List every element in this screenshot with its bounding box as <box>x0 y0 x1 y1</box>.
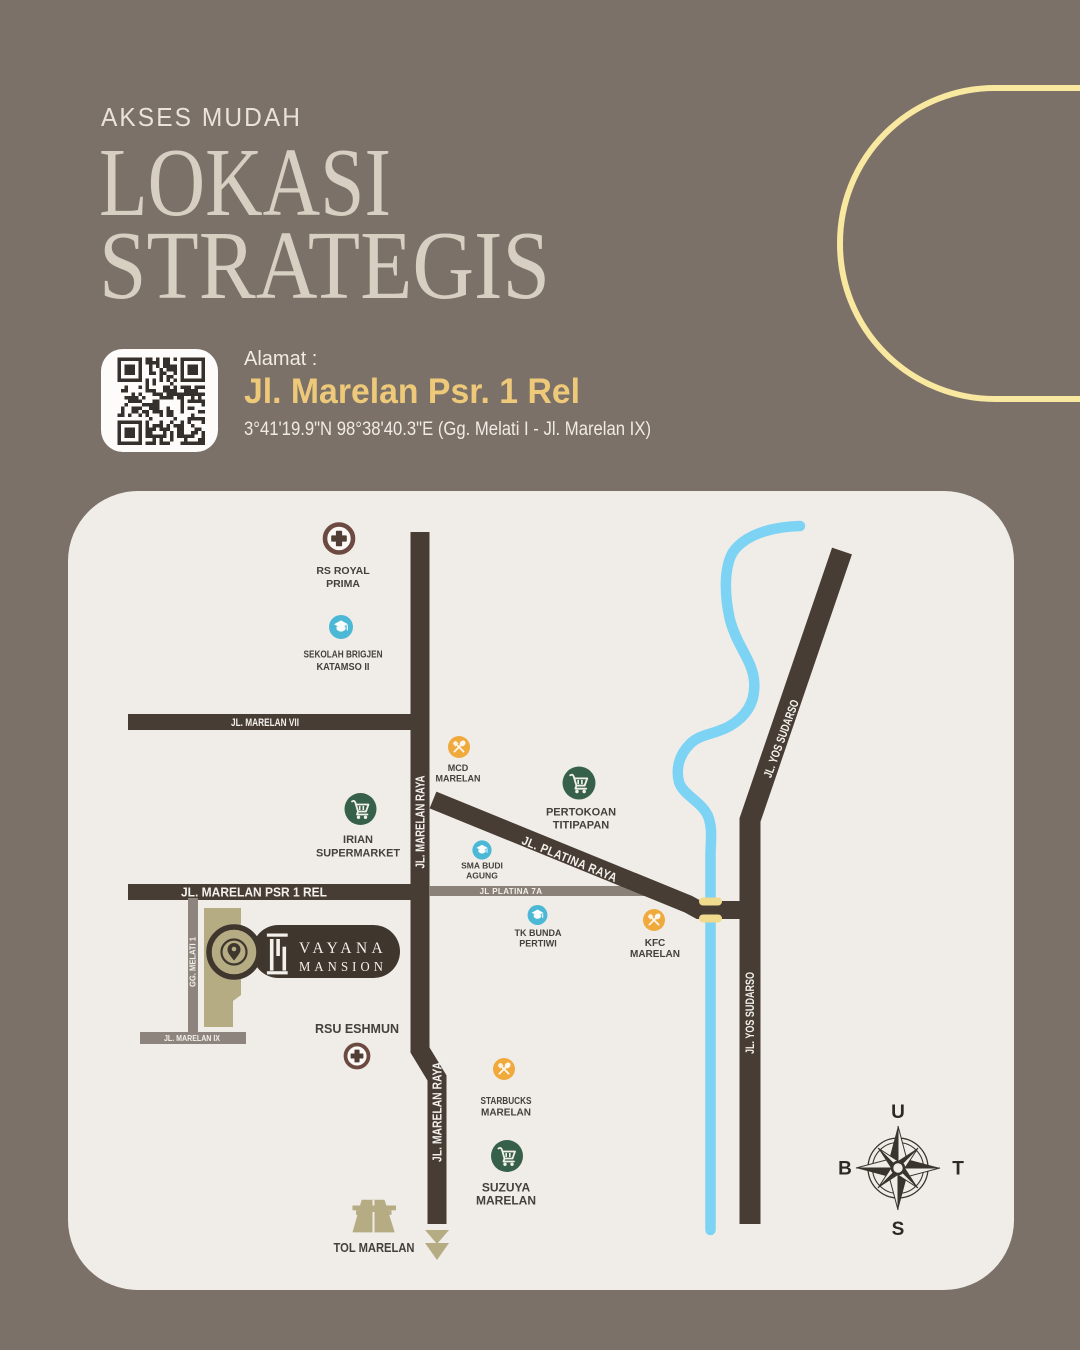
svg-text:SMA BUDI: SMA BUDI <box>461 861 503 871</box>
svg-text:U: U <box>891 1102 905 1123</box>
svg-text:JL. MARELAN RAYA: JL. MARELAN RAYA <box>431 1062 445 1162</box>
svg-text:Jl. Marelan Psr. 1 Rel: Jl. Marelan Psr. 1 Rel <box>244 372 580 411</box>
svg-text:T: T <box>952 1159 964 1180</box>
svg-text:AKSES MUDAH: AKSES MUDAH <box>101 102 302 132</box>
svg-text:SUZUYA: SUZUYA <box>482 1181 531 1195</box>
svg-text:JL. MARELAN VII: JL. MARELAN VII <box>231 717 299 729</box>
svg-text:AGUNG: AGUNG <box>466 871 498 881</box>
svg-text:Alamat :: Alamat : <box>244 348 317 370</box>
svg-text:RSU ESHMUN: RSU ESHMUN <box>315 1022 399 1036</box>
svg-text:TOL MARELAN: TOL MARELAN <box>334 1241 415 1255</box>
svg-text:PERTOKOAN: PERTOKOAN <box>546 807 616 819</box>
svg-text:MANSION: MANSION <box>299 960 387 975</box>
svg-text:JL PLATINA 7A: JL PLATINA 7A <box>480 887 543 896</box>
svg-text:3°41'19.9"N 98°38'40.3"E (Gg.: 3°41'19.9"N 98°38'40.3"E (Gg. Melati I -… <box>244 419 651 440</box>
svg-text:PRIMA: PRIMA <box>326 578 360 590</box>
svg-text:STRATEGIS: STRATEGIS <box>99 212 550 319</box>
svg-text:KATAMSO II: KATAMSO II <box>317 662 370 673</box>
svg-text:STARBUCKS: STARBUCKS <box>481 1096 532 1107</box>
svg-text:SUPERMARKET: SUPERMARKET <box>316 848 400 860</box>
svg-text:KFC: KFC <box>645 938 666 949</box>
svg-text:TK BUNDA: TK BUNDA <box>515 928 562 938</box>
svg-text:JL. MARELAN PSR 1 REL: JL. MARELAN PSR 1 REL <box>181 886 327 900</box>
svg-text:GG. MELATI 1: GG. MELATI 1 <box>189 936 198 987</box>
svg-text:JL. YOS SUDARSO: JL. YOS SUDARSO <box>743 972 757 1054</box>
svg-text:MARELAN: MARELAN <box>476 1194 536 1208</box>
svg-text:S: S <box>892 1219 905 1240</box>
svg-text:JL. MARELAN IX: JL. MARELAN IX <box>164 1034 221 1043</box>
svg-text:SEKOLAH BRIGJEN: SEKOLAH BRIGJEN <box>304 650 383 661</box>
svg-text:MARELAN: MARELAN <box>630 949 680 960</box>
svg-text:MARELAN: MARELAN <box>481 1108 531 1119</box>
svg-text:MCD: MCD <box>448 763 469 773</box>
svg-text:MARELAN: MARELAN <box>436 774 481 784</box>
svg-text:TITIPAPAN: TITIPAPAN <box>553 820 609 832</box>
svg-text:IRIAN: IRIAN <box>343 834 373 846</box>
svg-text:B: B <box>838 1159 852 1180</box>
svg-text:JL. MARELAN RAYA: JL. MARELAN RAYA <box>414 776 428 869</box>
svg-text:VAYANA: VAYANA <box>299 940 387 957</box>
svg-text:PERTIWI: PERTIWI <box>519 939 557 949</box>
svg-text:RS ROYAL: RS ROYAL <box>316 565 370 577</box>
